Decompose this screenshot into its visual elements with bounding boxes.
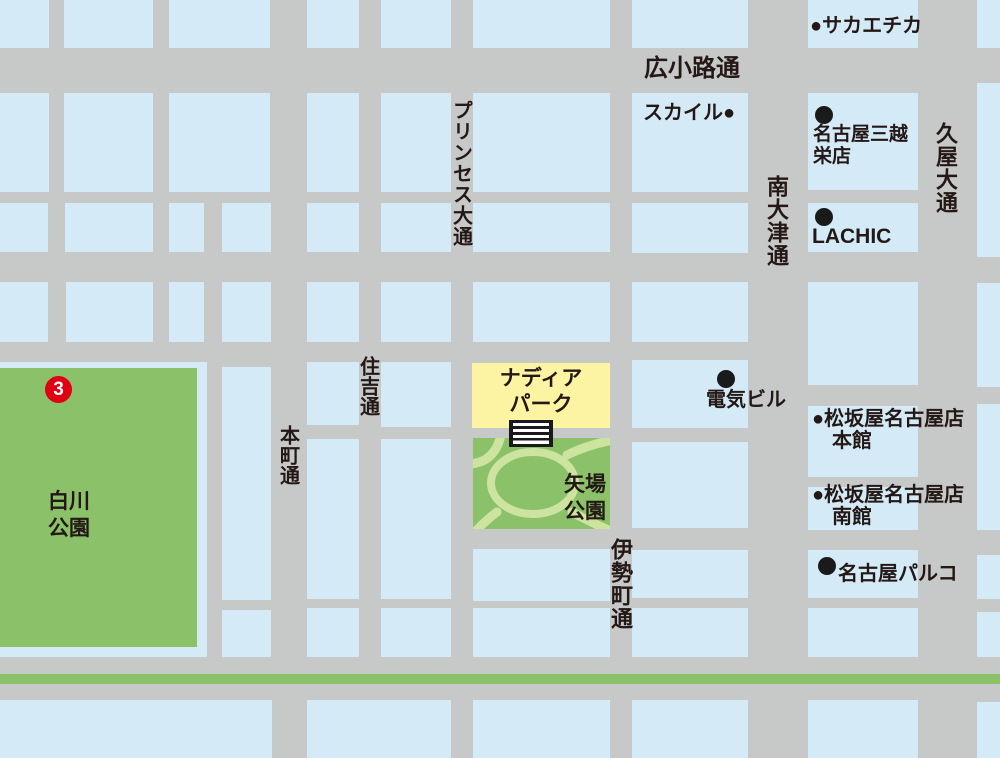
tree-lined-avenue-stripe	[0, 674, 1000, 684]
city-block	[222, 610, 271, 657]
city-block	[381, 0, 451, 48]
city-block	[0, 0, 49, 48]
city-block	[808, 700, 918, 758]
city-block	[0, 203, 48, 252]
city-block	[632, 550, 748, 598]
street-label-princess-odori: プリンセス大通	[447, 100, 476, 247]
poi-label-denki-building: 電気ビル	[706, 390, 786, 412]
city-block	[65, 203, 153, 252]
poi-label-sakaechika: ●サカエチカ	[810, 16, 922, 38]
city-block	[381, 93, 451, 192]
parco-bullet	[818, 557, 836, 575]
city-block	[64, 93, 153, 192]
city-block	[473, 203, 610, 252]
shirakawa-park-block	[0, 368, 197, 647]
poi-label-skyle: スカイル●	[643, 103, 735, 125]
city-block	[64, 0, 153, 48]
city-block	[632, 442, 748, 528]
city-block	[977, 702, 1000, 758]
city-block	[808, 608, 918, 657]
city-block	[977, 0, 1000, 48]
city-block	[307, 0, 359, 48]
city-block	[222, 282, 271, 342]
city-block	[307, 93, 359, 192]
city-block	[977, 555, 1000, 599]
city-block	[632, 0, 748, 48]
city-block	[977, 283, 1000, 387]
lachic-bullet	[815, 208, 833, 226]
street-label-isemachi-dori: 伊勢町通	[604, 538, 636, 630]
city-block	[307, 608, 359, 657]
street-label-hirokoji-dori: 広小路通	[644, 56, 740, 82]
city-block	[307, 282, 359, 342]
city-block	[473, 700, 610, 758]
denki-building-bullet	[717, 370, 735, 388]
poi-label-matsuzakaya-south: ●松坂屋名古屋店 南館	[812, 484, 964, 528]
city-block	[632, 608, 748, 657]
street-label-hisaya-odori: 久屋大通	[929, 122, 961, 214]
city-block	[222, 203, 271, 252]
city-block	[66, 282, 153, 342]
poi-label-shirakawa-park: 白川 公園	[48, 488, 90, 542]
city-block	[0, 282, 48, 342]
city-block	[381, 362, 451, 427]
city-block	[473, 93, 610, 192]
poi-label-nadya-park: ナディア パーク	[472, 366, 610, 418]
city-block	[222, 367, 271, 600]
street-label-sumiyoshi-dori: 住吉通	[354, 356, 383, 416]
city-block	[381, 439, 451, 599]
city-block	[808, 282, 918, 385]
city-block	[473, 608, 610, 657]
mitsukoshi-bullet	[815, 106, 833, 124]
city-block	[307, 203, 359, 252]
city-block	[0, 700, 272, 758]
city-block	[381, 608, 451, 657]
poi-label-matsuzakaya-main: ●松坂屋名古屋店 本館	[812, 408, 964, 452]
city-block	[977, 83, 1000, 257]
city-block	[169, 203, 204, 252]
city-block	[169, 282, 204, 342]
poi-label-lachic: LACHIC	[812, 226, 891, 249]
marker-number: 3	[53, 379, 64, 401]
city-block	[632, 700, 748, 758]
city-block	[473, 0, 610, 48]
poi-label-yaba-park: 矢場 公園	[564, 471, 606, 525]
city-block	[977, 612, 1000, 657]
city-block	[169, 93, 270, 192]
city-block	[473, 549, 610, 601]
map-point-marker-3: 3	[45, 376, 72, 403]
city-block	[632, 282, 748, 342]
city-block	[632, 203, 748, 253]
city-block	[169, 0, 270, 48]
city-block	[307, 362, 359, 425]
street-label-minami-otsu-dori: 南大津通	[760, 175, 792, 267]
crosswalk-icon	[509, 420, 553, 447]
city-block	[473, 282, 610, 342]
poi-label-parco: 名古屋パルコ	[838, 564, 958, 586]
street-label-honmachi-dori: 本町通	[274, 425, 303, 485]
crosswalk-stripes	[513, 423, 549, 444]
poi-label-mitsukoshi: 名古屋三越 栄店	[813, 124, 908, 168]
city-block	[381, 282, 451, 342]
city-block	[381, 203, 451, 252]
city-block	[307, 700, 451, 758]
city-block	[307, 439, 359, 599]
city-block	[0, 93, 49, 192]
city-street-map: 広小路通●サカエチカスカイル●名古屋三越 栄店LACHIC電気ビルナディア パー…	[0, 0, 1000, 758]
city-block	[977, 404, 1000, 530]
